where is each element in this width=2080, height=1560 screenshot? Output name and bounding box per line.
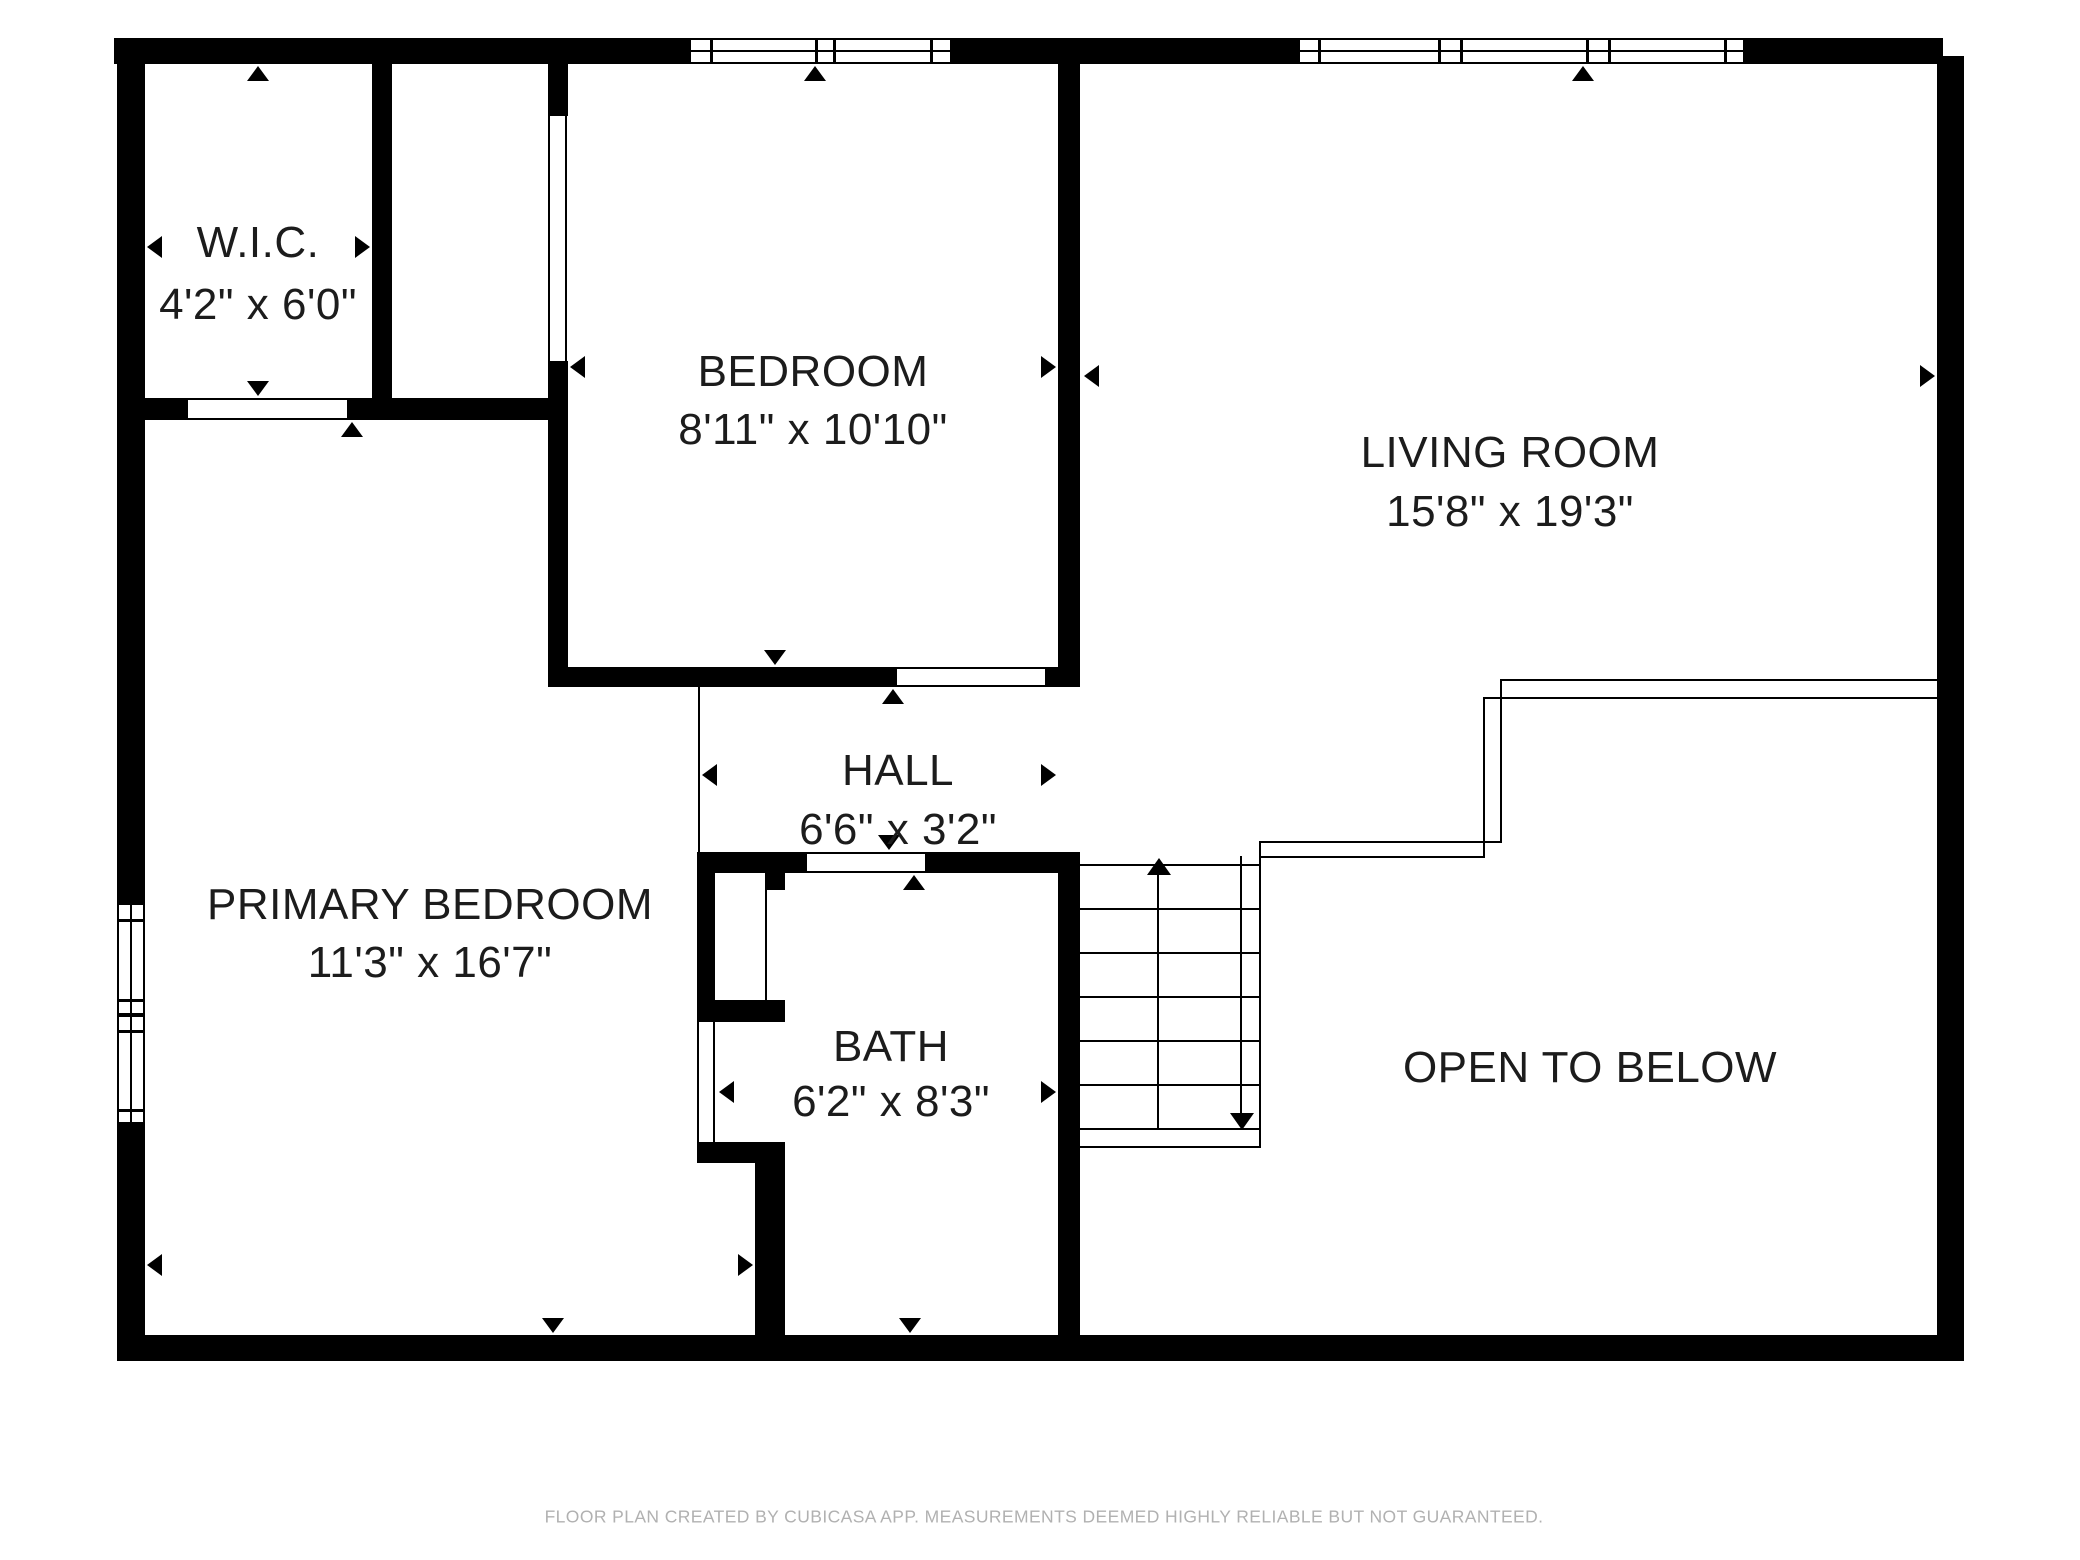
wall-stair-bath <box>1058 855 1080 1335</box>
room-label-primary-bedroom: PRIMARY BEDROOM <box>207 880 653 930</box>
wall-bath-niche-stub <box>765 873 785 890</box>
window-glass-line <box>691 50 950 53</box>
dimension-arrow-down-icon <box>542 1318 564 1333</box>
room-dims-bath: 6'2" x 8'3" <box>792 1077 990 1127</box>
stair-down-line <box>1240 856 1242 1114</box>
dimension-arrow-up-icon <box>882 689 904 704</box>
window-primary-lower <box>117 1015 145 1124</box>
staircase <box>1080 841 1261 1148</box>
window-glass-line <box>130 1017 133 1122</box>
opening-bath-left-jamb <box>697 1022 699 1142</box>
wall-wic-bottom-left <box>145 398 188 420</box>
stair-direction-down-arrow-icon <box>1230 1113 1254 1130</box>
window-frame-line <box>1318 40 1321 62</box>
footer-disclaimer: FLOOR PLAN CREATED BY CUBICASA APP. MEAS… <box>545 1507 1544 1528</box>
window-glass-line <box>1300 50 1743 53</box>
dimension-arrow-up-icon <box>341 422 363 437</box>
dimension-arrow-down-icon <box>764 650 786 665</box>
dimension-arrow-up-icon <box>247 66 269 81</box>
wall-wic-bottom-right <box>347 398 563 420</box>
window-frame-line <box>930 40 933 62</box>
dimension-arrow-right-icon <box>355 236 370 258</box>
wall-bedroom-right <box>1058 64 1080 687</box>
opening-hall-primary <box>698 687 700 852</box>
dimension-arrow-left-icon <box>147 1254 162 1276</box>
room-label-bedroom: BEDROOM <box>698 347 929 397</box>
room-dims-wic: 4'2" x 6'0" <box>159 280 357 330</box>
dimension-arrow-right-icon <box>1041 764 1056 786</box>
opening-wic-door <box>188 398 347 400</box>
window-frame-line <box>1438 40 1441 62</box>
room-dims-living-room: 15'8" x 19'3" <box>1386 487 1634 537</box>
stair-tread <box>1080 1040 1259 1042</box>
railing-outer-lower <box>1259 841 1502 843</box>
railing-outer-vert <box>1500 679 1502 841</box>
stair-direction-up-arrow-icon <box>1147 858 1171 875</box>
dimension-arrow-right-icon <box>1041 356 1056 378</box>
window-frame-line <box>833 40 836 62</box>
wall-bedroom-bottom-left <box>548 667 897 687</box>
room-label-hall: HALL <box>842 746 954 796</box>
window-primary-upper <box>117 903 145 1015</box>
window-frame-line <box>1608 40 1611 62</box>
wall-bottom <box>117 1335 1964 1361</box>
window-bedroom <box>689 38 952 64</box>
opening-wic-door <box>188 418 347 420</box>
window-frame-line <box>119 999 143 1002</box>
dimension-arrow-left-icon <box>702 764 717 786</box>
dimension-arrow-left-icon <box>570 356 585 378</box>
railing-inner-lower <box>1259 856 1485 858</box>
opening-niche <box>765 890 767 1000</box>
opening-bedroom-door <box>897 685 1045 687</box>
dimension-arrow-up-icon <box>903 875 925 890</box>
room-dims-primary-bedroom: 11'3" x 16'7" <box>308 938 553 988</box>
railing-outer-top <box>1500 679 1937 681</box>
dimension-arrow-left-icon <box>1084 365 1099 387</box>
dimension-arrow-up-icon <box>1572 66 1594 81</box>
room-label-wic: W.I.C. <box>197 218 320 268</box>
wall-bath-niche-bottom <box>697 1000 785 1022</box>
room-dims-hall: 6'6" x 3'2" <box>799 805 997 855</box>
room-label-open-to-below: OPEN TO BELOW <box>1403 1043 1777 1093</box>
stair-right-edge <box>1259 841 1261 1146</box>
window-frame-line <box>119 1030 143 1033</box>
room-label-living-room: LIVING ROOM <box>1361 428 1660 478</box>
wall-bath-top-right <box>925 852 1080 873</box>
window-frame-line <box>119 919 143 922</box>
opening-bedroom-door <box>897 667 1045 669</box>
wall-bedroom-left-top <box>548 64 568 116</box>
opening-bath-door <box>807 871 925 873</box>
wall-bedroom-left-bottom <box>548 361 568 687</box>
wall-wic-right <box>372 64 392 400</box>
dimension-arrow-right-icon <box>1920 365 1935 387</box>
stair-tread <box>1080 952 1259 954</box>
opening-bedroom-left-jamb <box>548 116 550 361</box>
dimension-arrow-left-icon <box>719 1081 734 1103</box>
stair-void-edge <box>1080 1146 1261 1148</box>
stair-tread <box>1080 1084 1259 1086</box>
window-frame-line <box>710 40 713 62</box>
wall-left <box>117 38 145 1361</box>
opening-bath-left-jamb <box>713 1022 715 1142</box>
dimension-arrow-down-icon <box>247 381 269 396</box>
dimension-arrow-down-icon <box>899 1318 921 1333</box>
stair-up-line <box>1157 866 1159 1128</box>
window-frame-line <box>1586 40 1589 62</box>
dimension-arrow-right-icon <box>738 1254 753 1276</box>
stair-tread <box>1080 996 1259 998</box>
stair-tread <box>1080 908 1259 910</box>
wall-right <box>1937 56 1964 1361</box>
window-frame-line <box>119 1109 143 1112</box>
railing-inner-vert <box>1483 697 1485 856</box>
window-frame-line <box>1724 40 1727 62</box>
dimension-arrow-left-icon <box>147 236 162 258</box>
opening-bedroom-left-jamb <box>565 116 567 361</box>
window-living-room <box>1298 38 1745 64</box>
wall-bath-lower-v <box>755 1142 785 1335</box>
wall-bath-niche-left <box>697 852 715 1022</box>
room-dims-bedroom: 8'11" x 10'10" <box>678 405 948 455</box>
window-frame-line <box>815 40 818 62</box>
dimension-arrow-up-icon <box>804 66 826 81</box>
dimension-arrow-right-icon <box>1041 1081 1056 1103</box>
floor-plan-canvas: W.I.C. 4'2" x 6'0" BEDROOM 8'11" x 10'10… <box>0 0 2080 1560</box>
railing-inner-top <box>1483 697 1937 699</box>
window-frame-line <box>1460 40 1463 62</box>
room-label-bath: BATH <box>833 1022 949 1072</box>
